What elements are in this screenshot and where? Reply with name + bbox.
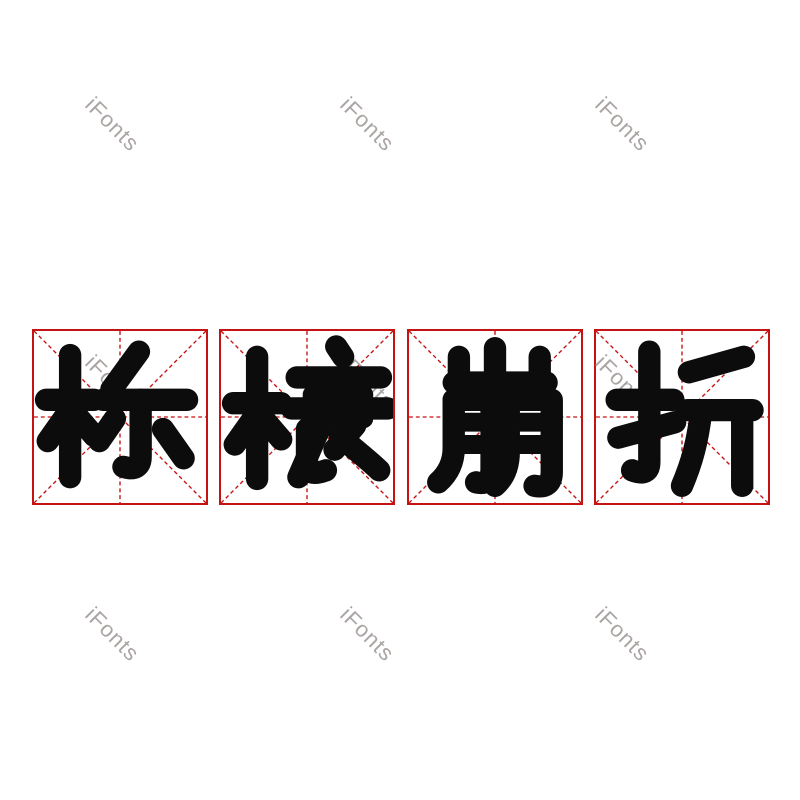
hanzi-cell-2: 榱 — [219, 329, 395, 505]
hanzi-cell-3: 崩 — [407, 329, 583, 505]
watermark-text: iFonts — [335, 602, 400, 667]
hanzi-cell-1: 栋 — [32, 329, 208, 505]
watermark-text: iFonts — [80, 92, 145, 157]
watermark-text: iFonts — [590, 602, 655, 667]
hanzi-strokes-beng-icon — [409, 331, 581, 503]
hanzi-strokes-zhe-icon — [596, 331, 768, 503]
hanzi-cell-4: 折 — [594, 329, 770, 505]
watermark-text: iFonts — [590, 92, 655, 157]
watermark-text: iFonts — [335, 92, 400, 157]
hanzi-strokes-dong-icon — [34, 331, 206, 503]
watermark-text: iFonts — [80, 602, 145, 667]
hanzi-strokes-cui-icon — [221, 331, 393, 503]
font-preview-canvas: iFonts iFonts iFonts iFonts iFonts iFont… — [0, 0, 800, 800]
